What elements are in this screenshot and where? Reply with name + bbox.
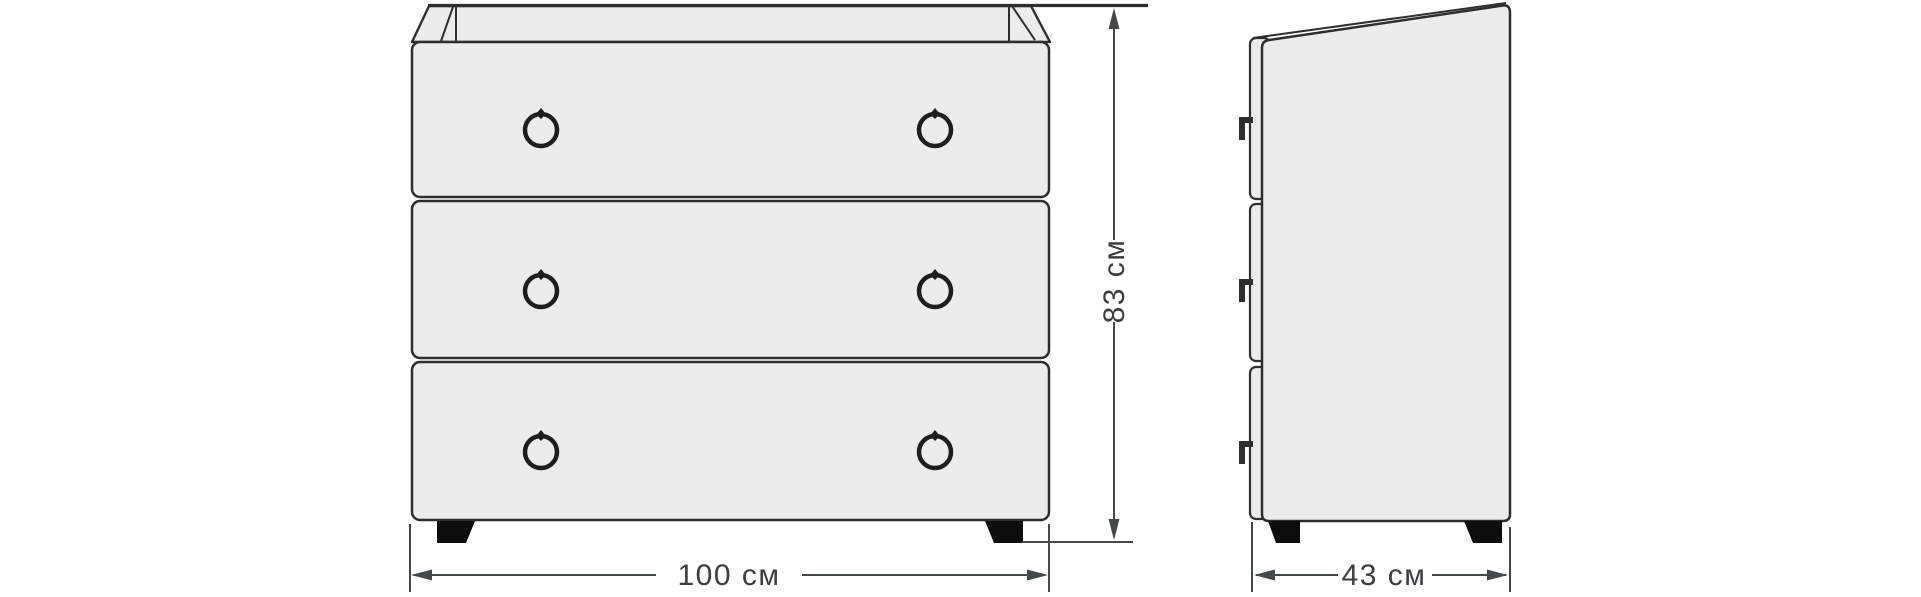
arrow-left-icon — [411, 570, 432, 581]
furniture-dimension-drawing: 100 см 83 см — [0, 0, 1921, 597]
arrow-right-icon — [1027, 570, 1048, 581]
side-feet — [1268, 521, 1502, 543]
side-panel — [1262, 5, 1510, 521]
feet — [437, 521, 1023, 543]
arrow-up-icon — [1109, 8, 1120, 29]
drawer-2 — [412, 201, 1049, 358]
top-surface-outline — [412, 6, 1050, 42]
width-dimension: 100 см — [410, 524, 1049, 592]
drawer-1 — [412, 42, 1049, 197]
arrow-down-icon — [1109, 519, 1120, 540]
front-left-foot — [437, 521, 475, 543]
width-dimension-label: 100 см — [677, 559, 780, 592]
drawers — [412, 42, 1049, 520]
front-view — [412, 6, 1148, 544]
side-view — [1239, 3, 1510, 543]
arrow-left-icon — [1254, 570, 1275, 581]
front-right-foot — [985, 521, 1023, 543]
side-back-foot — [1464, 521, 1502, 543]
drawer-3 — [412, 362, 1049, 520]
depth-dimension-label: 43 см — [1342, 559, 1427, 592]
side-front-foot — [1268, 521, 1300, 543]
top-surface — [412, 6, 1148, 43]
height-dimension-label: 83 см — [1098, 239, 1131, 324]
arrow-right-icon — [1487, 570, 1508, 581]
